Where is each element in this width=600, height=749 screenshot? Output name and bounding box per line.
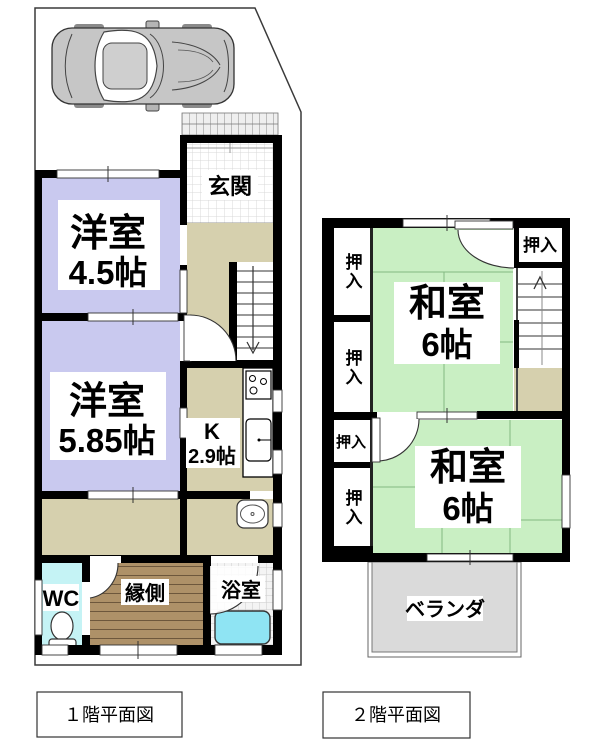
- floorplan-canvas: 玄関 洋室 4.5帖 洋室 5.85帖 K 2.9帖 WC 縁側 浴室 和室 6…: [0, 0, 600, 749]
- genkan-label: 玄関: [208, 174, 252, 199]
- closet5-label: 押入: [523, 235, 557, 255]
- closet4-label: 押入: [343, 488, 363, 527]
- bathtub-icon: [215, 611, 270, 644]
- closet2-label: 押入: [343, 348, 363, 387]
- western1-size: 4.5帖: [69, 254, 148, 291]
- japanese2-label: 和室: [430, 446, 506, 489]
- caption-boxes: １階平面図 ２階平面図: [37, 692, 470, 738]
- washbasin-icon: [237, 500, 268, 528]
- japanese1-label: 和室: [409, 282, 485, 325]
- japanese2-size: 6帖: [442, 490, 493, 527]
- closet3-label: 押入: [336, 433, 366, 451]
- wc-label: WC: [43, 586, 80, 611]
- western2-label: 洋室: [69, 380, 145, 423]
- western1-label: 洋室: [70, 212, 146, 255]
- kitchen-counter: [243, 368, 273, 477]
- floorplan-svg: 玄関 洋室 4.5帖 洋室 5.85帖 K 2.9帖 WC 縁側 浴室 和室 6…: [0, 0, 600, 749]
- car-top-view: [52, 21, 234, 111]
- stairs-floor1: [237, 262, 273, 360]
- floor2-caption: ２階平面図: [351, 705, 441, 725]
- floor1-caption: １階平面図: [64, 705, 154, 725]
- stove-icon: [246, 371, 271, 399]
- stair-landing: [514, 368, 562, 411]
- kitchen-label: K: [204, 419, 220, 444]
- stairs-up-arrow: [534, 277, 546, 289]
- bathroom-label: 浴室: [221, 578, 261, 602]
- engawa-label: 縁側: [125, 581, 165, 605]
- closet1-label: 押入: [343, 252, 363, 291]
- kitchen-size: 2.9帖: [188, 445, 236, 468]
- western2-size: 5.85帖: [58, 422, 155, 459]
- japanese1-size: 6帖: [421, 326, 472, 363]
- veranda-label: ベランダ: [405, 597, 485, 621]
